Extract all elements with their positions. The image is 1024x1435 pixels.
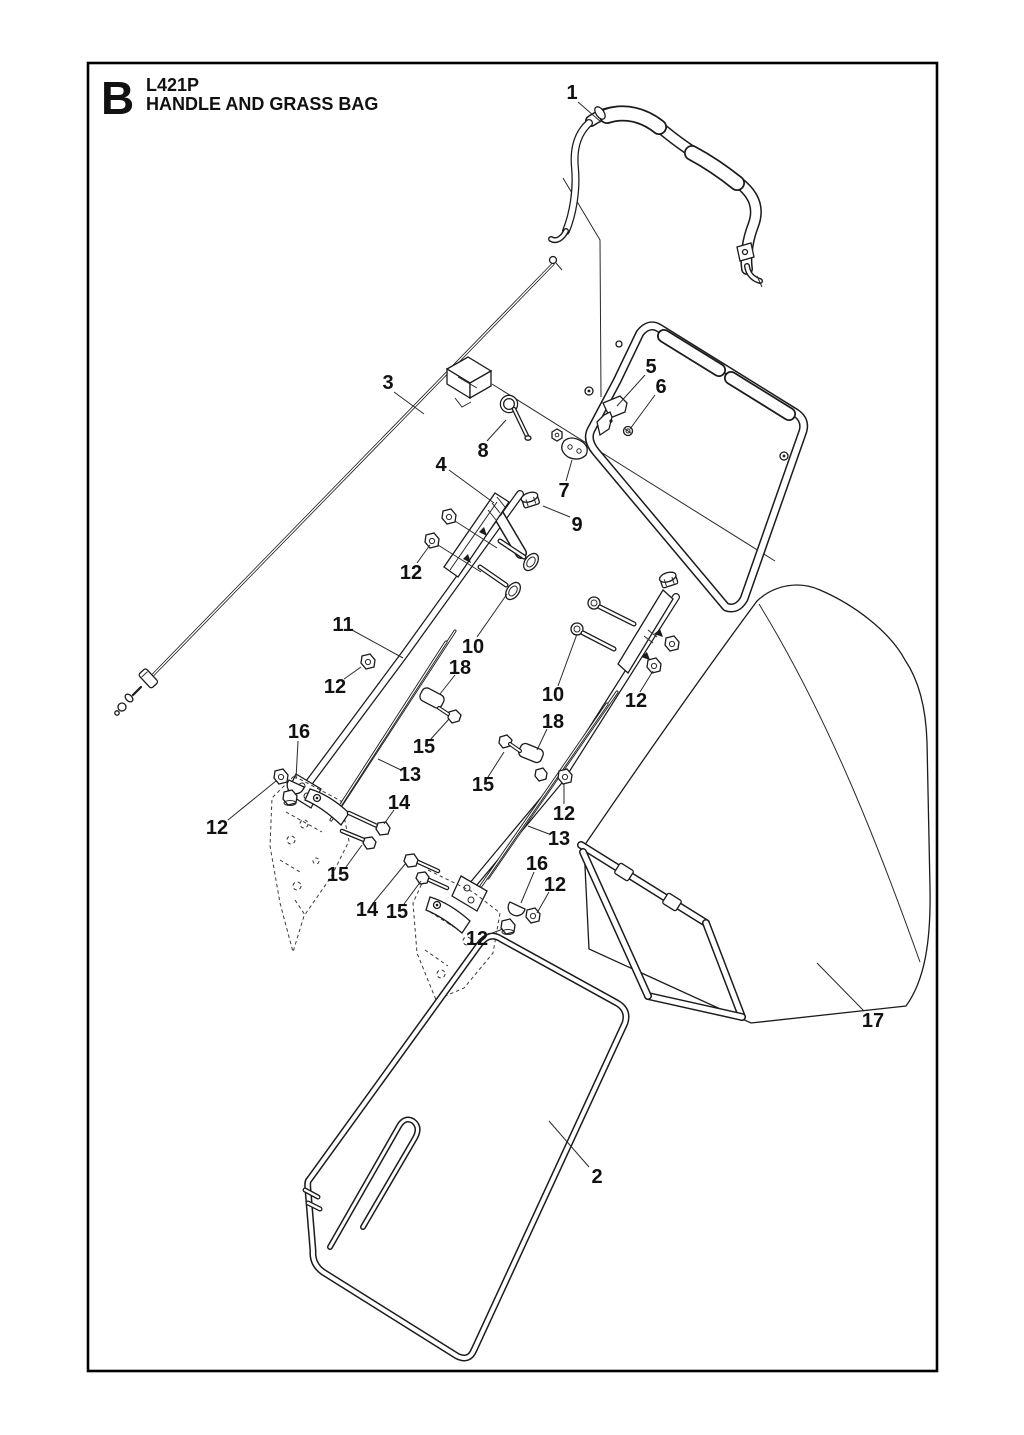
model-code: L421P: [146, 75, 199, 95]
callout-13: 13: [548, 828, 570, 850]
callout-16: 16: [288, 721, 310, 743]
callout-9: 9: [571, 514, 582, 536]
callout-14: 14: [356, 899, 379, 921]
callout-7: 7: [558, 480, 569, 502]
callout-17: 17: [862, 1010, 884, 1032]
callout-6: 6: [655, 376, 666, 398]
callout-12: 12: [553, 803, 575, 825]
callout-10: 10: [542, 684, 564, 706]
callout-8: 8: [477, 440, 488, 462]
section-letter: B: [101, 72, 134, 124]
callout-3: 3: [382, 372, 393, 394]
callout-5: 5: [645, 356, 656, 378]
callout-4: 4: [435, 454, 447, 476]
page-title: HANDLE AND GRASS BAG: [146, 94, 378, 114]
callout-15: 15: [472, 774, 494, 796]
callout-12: 12: [324, 676, 346, 698]
callout-12: 12: [206, 817, 228, 839]
callout-12: 12: [400, 562, 422, 584]
callout-2: 2: [591, 1166, 602, 1188]
callout-12: 12: [544, 874, 566, 896]
parts-diagram-page: B L421P HANDLE AND GRASS BAG: [0, 0, 1024, 1435]
callout-11: 11: [332, 614, 353, 636]
callout-15: 15: [386, 901, 408, 923]
callout-14: 14: [388, 792, 411, 814]
callout-10: 10: [462, 636, 484, 658]
callout-1: 1: [566, 82, 577, 104]
callout-16: 16: [526, 853, 548, 875]
callout-12: 12: [625, 690, 647, 712]
callout-18: 18: [449, 657, 471, 679]
callout-12: 12: [466, 928, 488, 950]
callout-15: 15: [327, 864, 349, 886]
callout-13: 13: [399, 764, 421, 786]
callout-15: 15: [413, 736, 435, 758]
callout-18: 18: [542, 711, 564, 733]
